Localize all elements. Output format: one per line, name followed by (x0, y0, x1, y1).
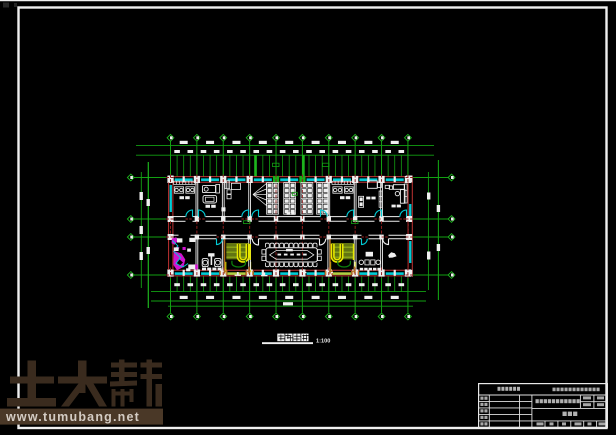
svg-text:1:100: 1:100 (316, 339, 330, 345)
svg-text:www.tumubang.net: www.tumubang.net (5, 410, 140, 424)
